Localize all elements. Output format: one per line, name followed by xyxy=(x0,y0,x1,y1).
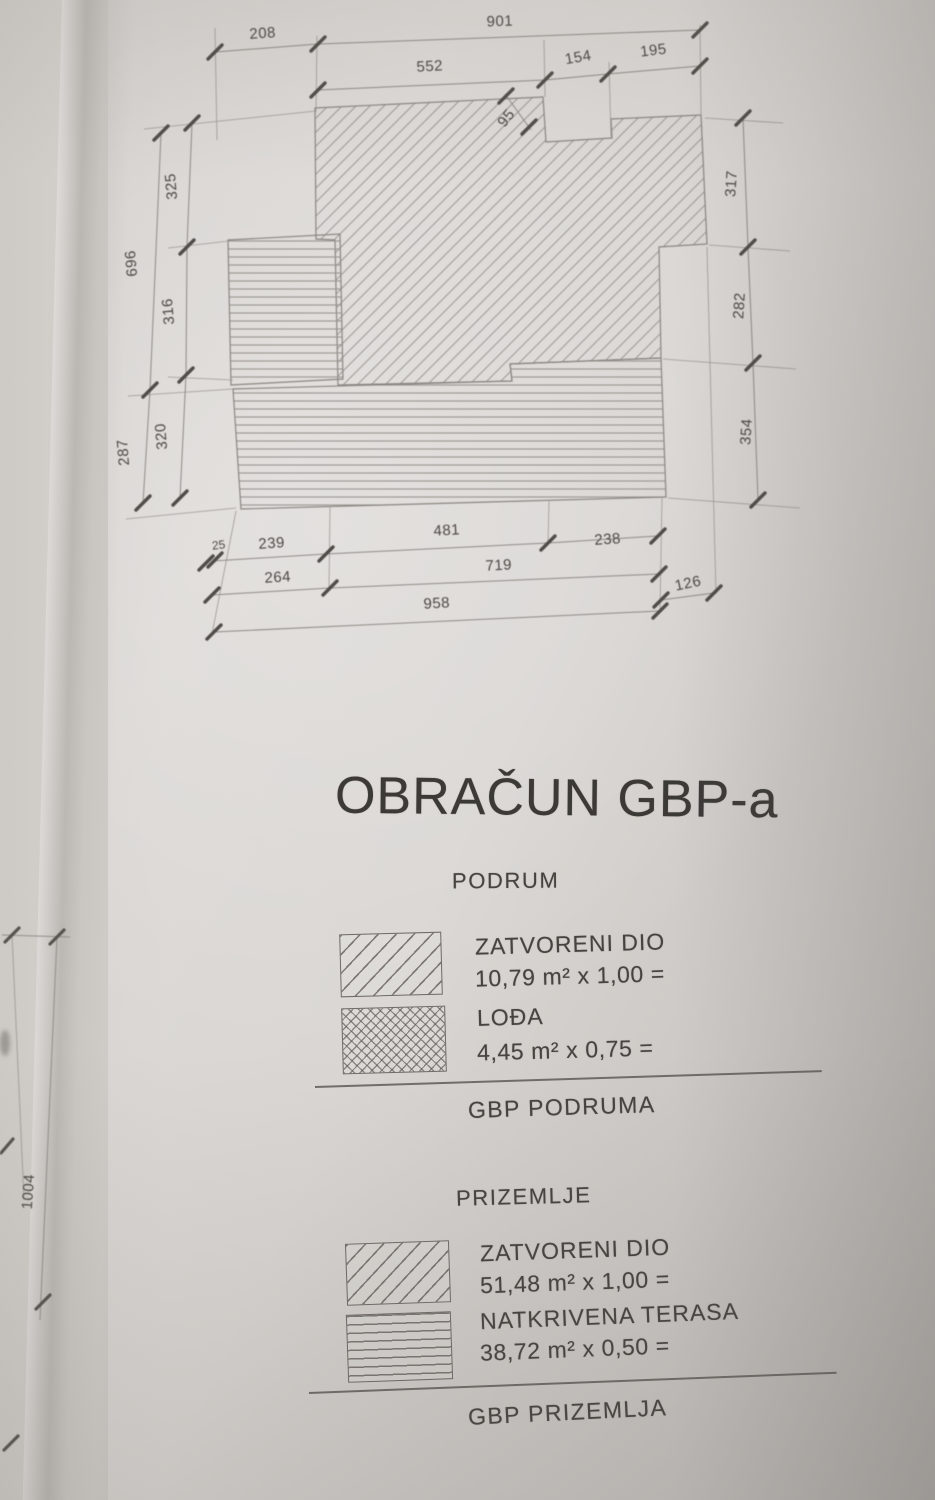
section-total-label: GBP PODRUMA xyxy=(468,1091,656,1124)
legend-label: ZATVORENI DIO xyxy=(480,1234,671,1268)
section-header-podrum: PODRUM xyxy=(452,868,560,895)
legend-swatch-crosshatch xyxy=(341,1006,447,1075)
legend-formula: 4,45 m² x 0,75 = xyxy=(477,1035,654,1067)
section-header-prizemlje: PRIZEMLJE xyxy=(456,1182,592,1212)
legend-formula: 10,79 m² x 1,00 = xyxy=(475,960,666,992)
legend-label: LOĐA xyxy=(477,1003,544,1032)
gbp-calculation-block: OBRAČUN GBP-a PODRUM ZATVORENI DIO 10,79… xyxy=(0,0,935,1500)
legend-swatch-diagonal-hatch xyxy=(345,1240,451,1306)
photographed-document: 1004 xyxy=(0,0,935,1500)
legend-label: ZATVORENI DIO xyxy=(475,928,666,960)
section-total-label: GBP PRIZEMLJA xyxy=(467,1394,667,1431)
legend-formula: 38,72 m² x 0,50 = xyxy=(480,1332,671,1367)
page-title: OBRAČUN GBP-a xyxy=(335,766,779,831)
legend-swatch-diagonal-hatch xyxy=(339,932,443,998)
legend-swatch-horizontal-lines xyxy=(346,1311,453,1383)
legend-label: NATKRIVENA TERASA xyxy=(480,1298,740,1335)
legend-formula: 51,48 m² x 1,00 = xyxy=(480,1266,671,1300)
